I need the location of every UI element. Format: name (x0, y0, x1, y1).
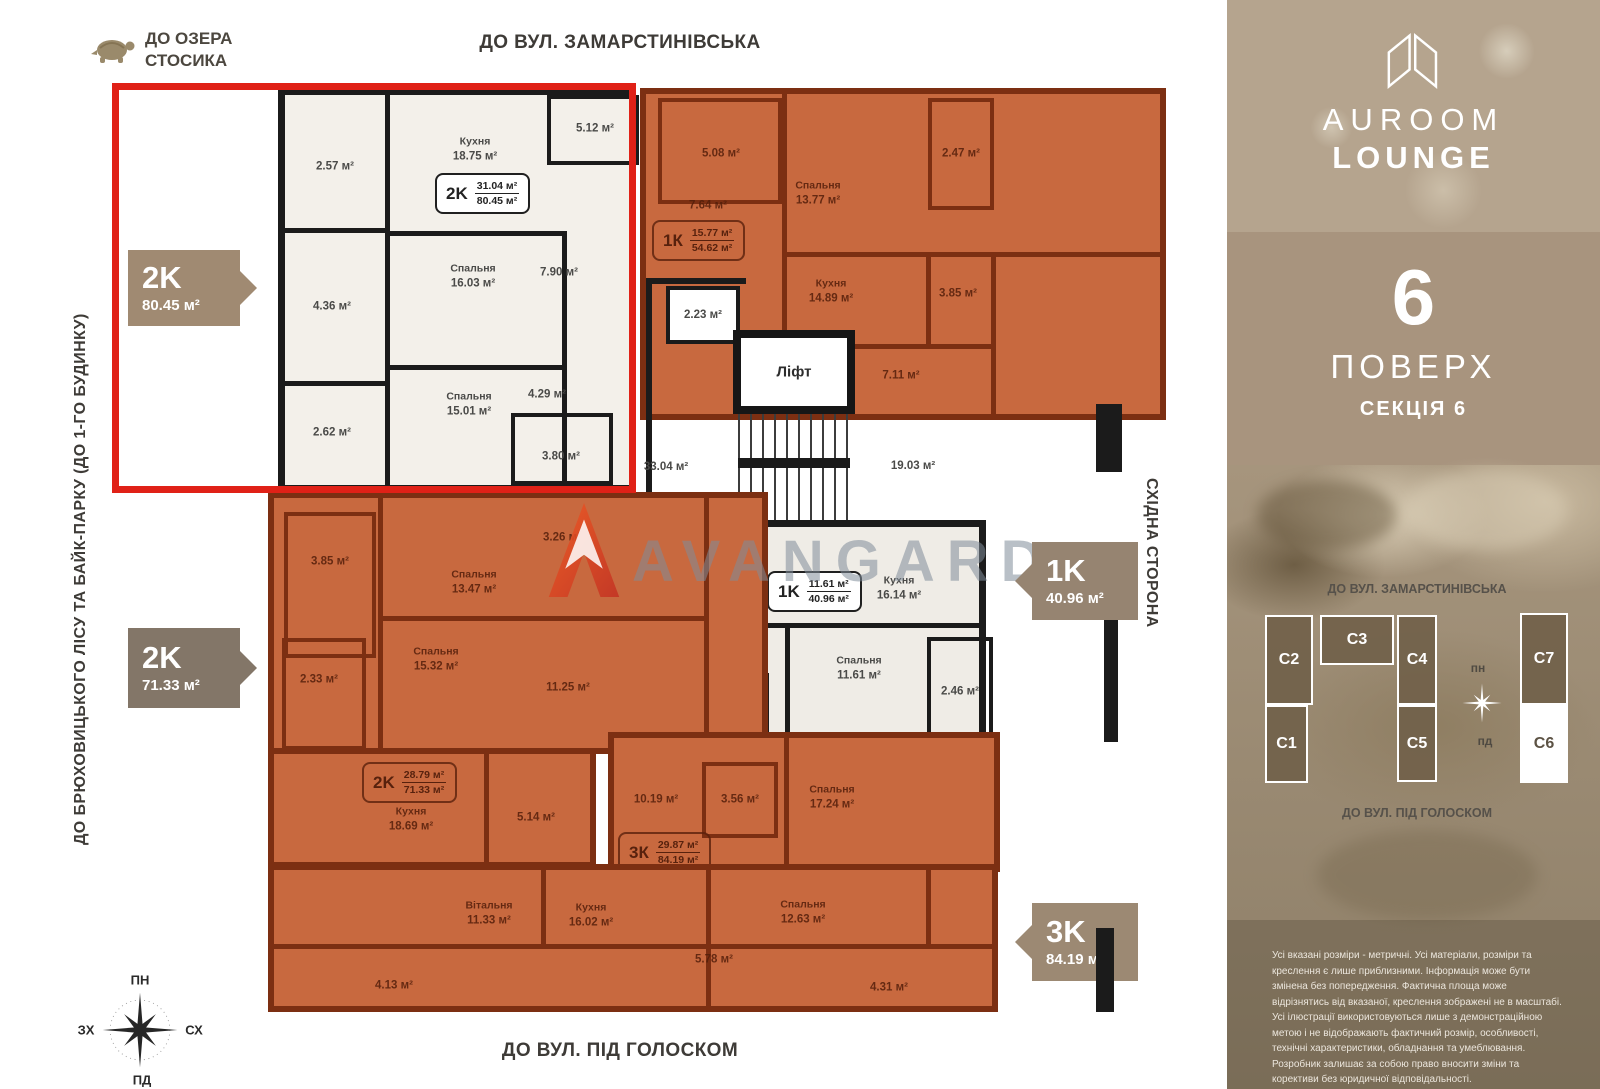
map-section-c7[interactable]: С7 (1520, 613, 1568, 705)
floor-label: ПОВЕРХ (1227, 348, 1600, 386)
section-label: СЕКЦІЯ 6 (1227, 398, 1600, 421)
disclaimer-text: Усі вказані розміри - метричні. Усі мате… (1272, 948, 1564, 1088)
balcony-2 (927, 637, 993, 740)
apartment-badge: 2K 28.79 м²71.33 м² (362, 762, 457, 803)
storage (282, 638, 366, 750)
tag-area: 80.45 м² (142, 297, 226, 314)
map-compass-north: пн (1471, 661, 1486, 675)
left-street-label: ДО БРЮХОВИЦЬКОГО ЛІСУ ТА БАЙК-ПАРКУ (ДО … (72, 285, 90, 845)
tag-2k-8045[interactable]: 2K 80.45 м² (128, 250, 240, 326)
tag-type: 2K (142, 642, 226, 675)
map-section-c6-active[interactable]: С6 (1520, 705, 1568, 783)
apartment-2k-7133-kitchen[interactable]: Кухня18.69 м² 5.14 м² 2K 28.79 м²71.33 м… (268, 748, 596, 868)
compass-west-label: ЗХ (78, 1023, 95, 1038)
apartment-badge: 2K 31.04 м²80.45 м² (435, 173, 530, 214)
turtle-icon (88, 30, 138, 68)
apartment-3k-8419[interactable]: Вітальня11.33 м² Кухня16.02 м² Спальня12… (268, 864, 998, 1012)
bathroom (658, 98, 782, 204)
tag-type: 1K (1046, 555, 1124, 588)
map-section-c1[interactable]: С1 (1265, 705, 1308, 783)
compass-south-label: ПД (133, 1073, 152, 1088)
compass-east-label: СХ (185, 1023, 203, 1038)
apartment-badge: 1К 15.77 м²54.62 м² (652, 220, 745, 261)
top-street-label: ДО ВУЛ. ЗАМАРСТИНІВСЬКА (479, 32, 760, 54)
map-section-c4[interactable]: С4 (1397, 615, 1437, 705)
bottom-street-label: ДО ВУЛ. ПІД ГОЛОСКОМ (502, 1040, 738, 1062)
tag-type: 2K (142, 262, 226, 295)
tag-1k-4096[interactable]: 1K 40.96 м² (1032, 542, 1138, 620)
avangard-watermark: AVANGARD (632, 528, 1055, 595)
bathroom-2 (511, 413, 613, 485)
elevator-label: Ліфт (777, 364, 812, 381)
compass-rose-icon (98, 988, 182, 1072)
floor-plan-page: ДО ОЗЕРА СТОСИКА ДО ВУЛ. ЗАМАРСТИНІВСЬКА… (0, 0, 1600, 1089)
lake-label: ДО ОЗЕРА СТОСИКА (145, 28, 232, 72)
floor-number: 6 (1227, 258, 1600, 336)
tag-area: 71.33 м² (142, 677, 226, 694)
avangard-logo-icon (548, 503, 620, 597)
brand-name-lounge: LOUNGE (1227, 140, 1600, 176)
balcony (284, 512, 376, 658)
bathroom (702, 762, 778, 838)
map-compass-icon (1460, 681, 1504, 725)
balcony (928, 98, 994, 210)
map-section-c3[interactable]: С3 (1320, 615, 1394, 665)
map-compass-south: пд (1478, 734, 1493, 748)
compass-north-label: ПН (131, 973, 150, 988)
tag-3k-8419[interactable]: 3K 84.19 м² (1032, 903, 1138, 981)
brand-name-auroom: AUROOM (1227, 102, 1600, 138)
sidebar: AUROOM LOUNGE 6 ПОВЕРХ СЕКЦІЯ 6 ДО ВУЛ. … (1227, 0, 1600, 1089)
map-bottom-street: ДО ВУЛ. ПІД ГОЛОСКОМ (1342, 806, 1492, 820)
map-section-c2[interactable]: С2 (1265, 615, 1313, 705)
map-top-street: ДО ВУЛ. ЗАМАРСТИНІВСЬКА (1327, 582, 1506, 596)
map-section-c5[interactable]: С5 (1397, 705, 1437, 782)
apartment-3k-8419-wing[interactable]: 10.19 м² 3.56 м² Спальня17.24 м² 3К 29.8… (608, 732, 1000, 872)
tag-2k-7133[interactable]: 2K 71.33 м² (128, 628, 240, 708)
auroom-logo (1369, 28, 1469, 94)
apartment-2k-8045[interactable]: 2.57 м² Кухня18.75 м² 5.12 м² 4.36 м² Сп… (278, 88, 636, 492)
bathroom (547, 95, 639, 165)
tag-area: 40.96 м² (1046, 590, 1124, 607)
apartment-1k-5462[interactable]: 5.08 м² Спальня13.77 м² 2.47 м² 7.64 м² … (640, 88, 1166, 420)
east-side-label: СХІДНА СТОРОНА (1142, 478, 1160, 628)
